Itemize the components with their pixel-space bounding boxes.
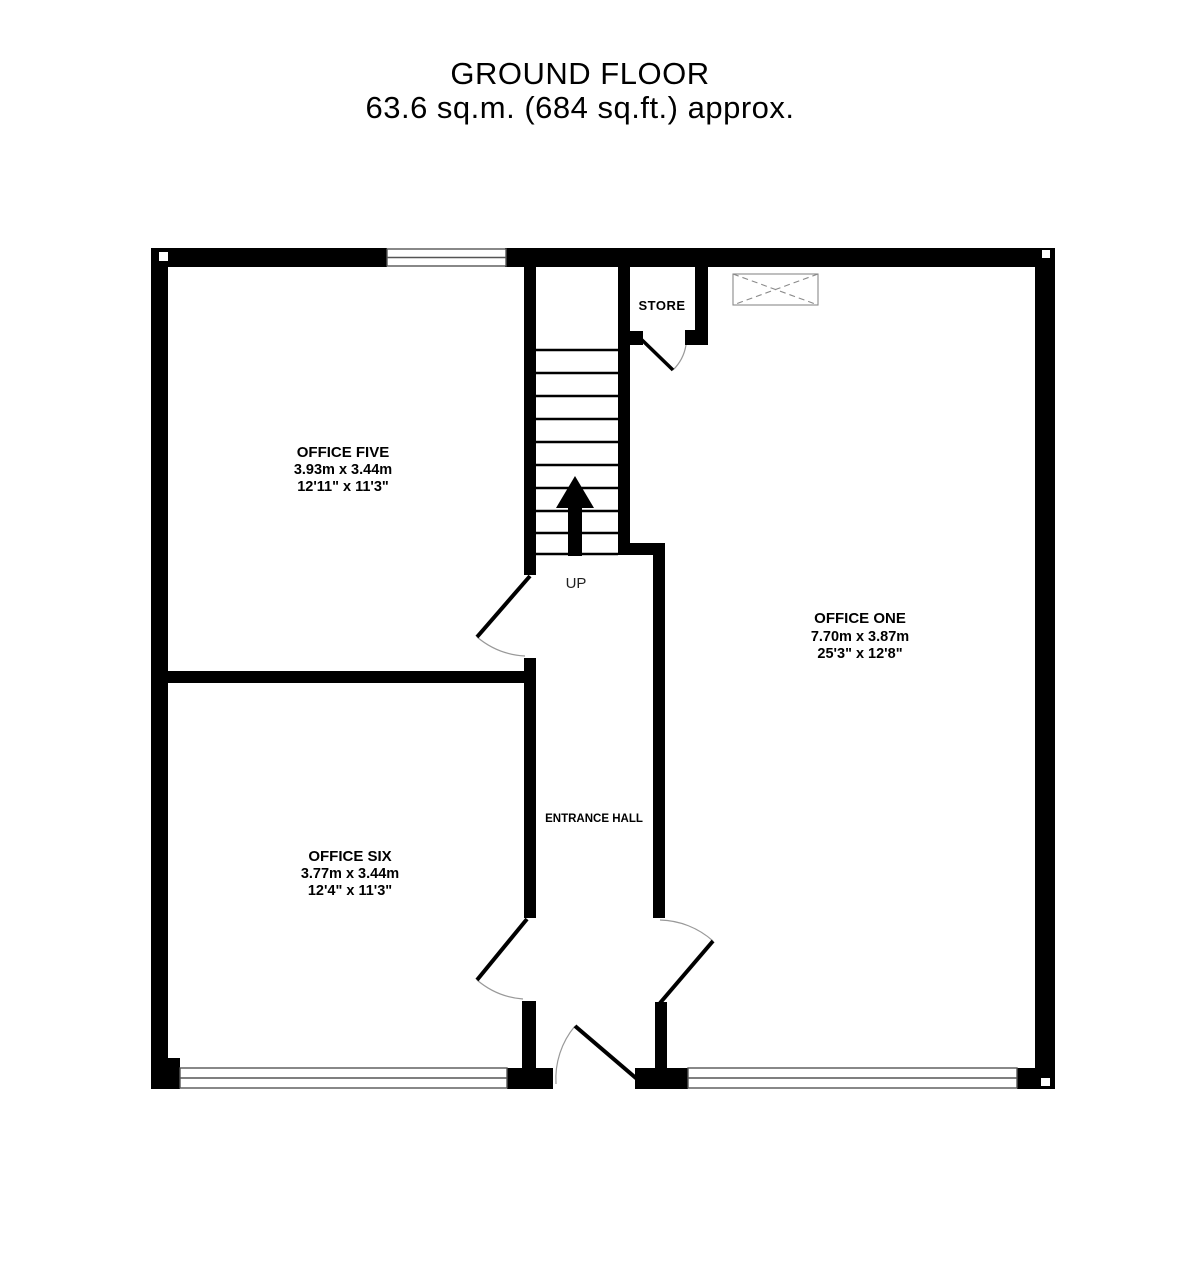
door-office-six — [477, 919, 527, 999]
wall-bottom-door-left-base — [507, 1068, 553, 1089]
staircase: UP — [536, 350, 618, 592]
floor-plan-canvas: GROUND FLOOR 63.6 sq.m. (684 sq.ft.) app… — [0, 0, 1200, 1277]
window-top — [387, 249, 506, 266]
window-bottom-office-one — [688, 1068, 1017, 1088]
wall-bottom-left-corner — [151, 1058, 180, 1089]
wall-stairwell-right — [618, 267, 630, 543]
wall-stairwell-left — [524, 267, 536, 575]
room-dim-imperial: 12'4" x 11'3" — [308, 883, 392, 899]
door-front-entrance — [556, 1026, 637, 1084]
room-dim-imperial: 25'3" x 12'8" — [817, 646, 902, 662]
plan-title-line2: 63.6 sq.m. (684 sq.ft.) approx. — [365, 90, 794, 125]
wall-hall-left-stub — [522, 1001, 536, 1068]
label-office-five: OFFICE FIVE 3.93m x 3.44m 12'11" x 11'3" — [294, 444, 392, 495]
door-store — [641, 339, 686, 370]
stairs-up-label: UP — [566, 575, 587, 592]
corner-notch — [1042, 250, 1050, 258]
wall-store-hinge-stub — [630, 331, 643, 345]
wall-bottom-door-right-base — [635, 1068, 688, 1089]
room-dim-metric: 3.77m x 3.44m — [301, 866, 399, 882]
label-office-one: OFFICE ONE 7.70m x 3.87m 25'3" x 12'8" — [811, 610, 909, 662]
door-office-one — [660, 920, 713, 1003]
window-bottom-office-six — [180, 1068, 507, 1088]
wall-store-right — [695, 267, 708, 330]
corner-notch — [1041, 1078, 1050, 1086]
door-office-five — [477, 576, 530, 656]
room-name: OFFICE FIVE — [297, 444, 390, 461]
interior-walls — [168, 267, 708, 1068]
plan-title-line1: GROUND FLOOR — [450, 56, 709, 91]
room-labels: OFFICE FIVE 3.93m x 3.44m 12'11" x 11'3"… — [294, 298, 909, 899]
skylight-symbol — [733, 274, 818, 305]
wall-hall-right-stub — [655, 1002, 667, 1068]
wall-stair-hall-jog — [618, 543, 665, 555]
wall-office-divider — [168, 671, 524, 683]
doors — [477, 339, 713, 1084]
room-dim-metric: 3.93m x 3.44m — [294, 462, 392, 478]
room-dim-metric: 7.70m x 3.87m — [811, 629, 909, 645]
label-entrance-hall: ENTRANCE HALL — [545, 813, 643, 825]
room-name: OFFICE ONE — [814, 610, 906, 627]
plan-title: GROUND FLOOR 63.6 sq.m. (684 sq.ft.) app… — [365, 56, 794, 125]
room-name: OFFICE SIX — [308, 848, 391, 865]
floor-plan-page: GROUND FLOOR 63.6 sq.m. (684 sq.ft.) app… — [0, 0, 1200, 1277]
wall-top-right — [505, 248, 1055, 267]
wall-hall-left — [524, 658, 536, 918]
label-store: STORE — [638, 298, 685, 313]
room-dim-imperial: 12'11" x 11'3" — [297, 479, 389, 495]
wall-left — [151, 248, 168, 1089]
wall-right — [1035, 248, 1055, 1089]
corner-notch — [159, 252, 168, 261]
wall-store-right-stub — [685, 330, 708, 345]
wall-top-left — [151, 248, 387, 267]
label-office-six: OFFICE SIX 3.77m x 3.44m 12'4" x 11'3" — [301, 848, 399, 899]
wall-hall-right — [653, 555, 665, 918]
windows — [180, 249, 1017, 1088]
